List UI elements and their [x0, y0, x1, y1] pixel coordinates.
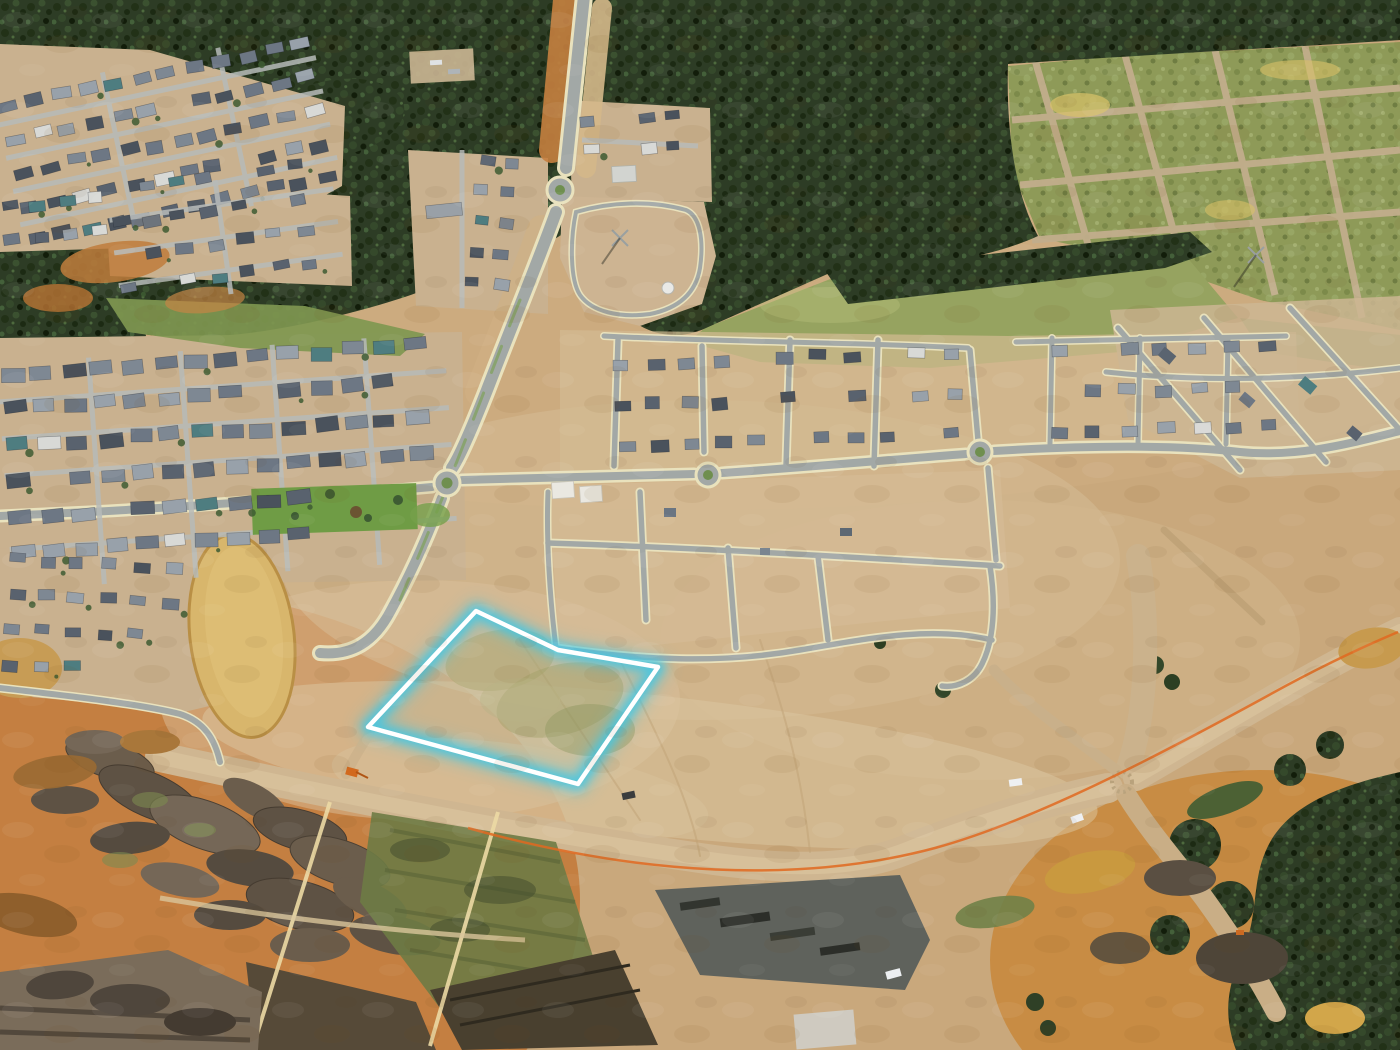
surface-mottle-overlay: [0, 0, 1400, 1050]
aerial-photo: [0, 0, 1400, 1050]
aerial-photograph-canvas: [0, 0, 1400, 1050]
